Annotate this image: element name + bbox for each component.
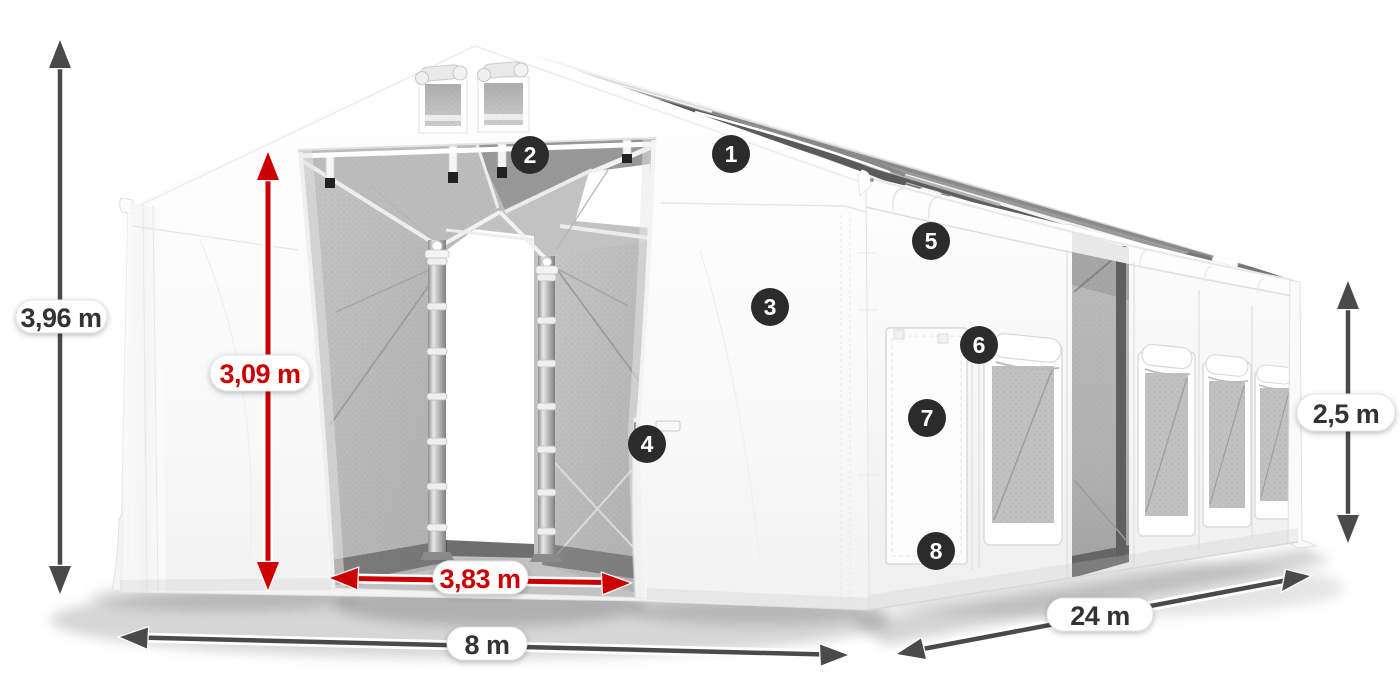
svg-text:8: 8 [930,538,943,564]
svg-text:4: 4 [641,431,654,457]
svg-text:3,83 m: 3,83 m [439,564,520,594]
svg-text:2,5 m: 2,5 m [1313,399,1380,429]
svg-text:2: 2 [524,142,537,168]
svg-text:5: 5 [925,228,938,254]
svg-text:3,96 m: 3,96 m [20,303,101,333]
svg-text:7: 7 [921,405,934,431]
svg-text:24 m: 24 m [1070,601,1130,631]
svg-text:3,09 m: 3,09 m [219,359,300,389]
svg-text:3: 3 [764,294,777,320]
svg-text:6: 6 [973,332,986,358]
svg-text:1: 1 [725,141,738,167]
svg-text:8 m: 8 m [464,630,509,660]
